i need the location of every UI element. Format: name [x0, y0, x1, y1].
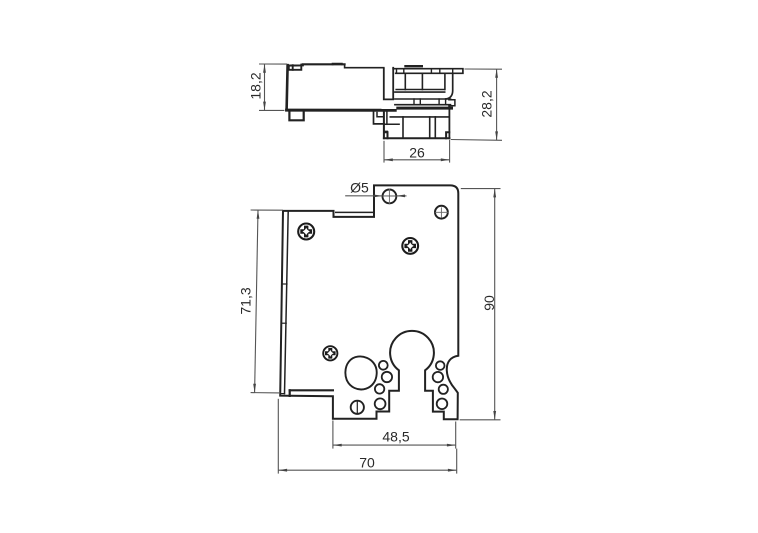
svg-text:70: 70	[359, 455, 375, 471]
svg-text:48,5: 48,5	[382, 428, 409, 444]
svg-text:Ø5: Ø5	[350, 179, 369, 195]
svg-text:28,2: 28,2	[479, 90, 495, 117]
svg-text:90: 90	[481, 295, 497, 311]
svg-text:26: 26	[409, 145, 425, 161]
svg-text:71,3: 71,3	[238, 287, 254, 314]
svg-text:18,2: 18,2	[248, 72, 264, 99]
